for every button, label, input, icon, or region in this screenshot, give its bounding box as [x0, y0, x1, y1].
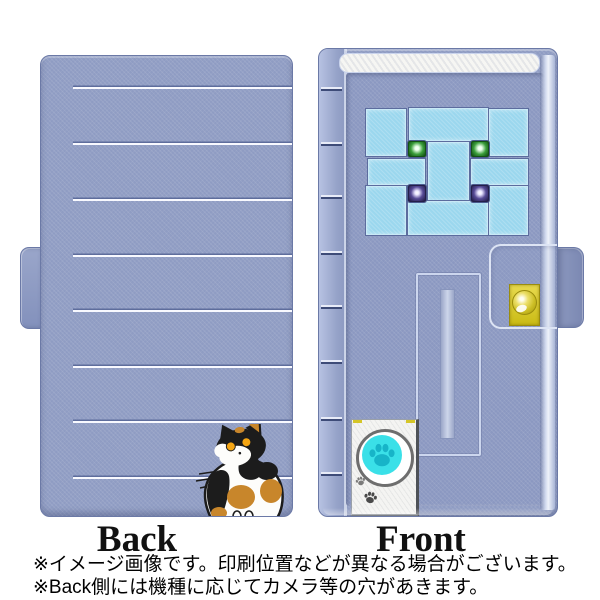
window-pane: [489, 186, 528, 235]
paw-print-icon: [362, 490, 379, 506]
siding-line: [73, 199, 292, 201]
case-bottom-bevel: [323, 508, 553, 515]
product-image: Back Front ※イメージ画像です。印刷位置などが異なる場合がございます。…: [0, 0, 600, 600]
door-transom-bar: [339, 53, 540, 73]
disclaimer-notes: ※イメージ画像です。印刷位置などが異なる場合がございます。 ※Back側には機種…: [33, 553, 598, 599]
window-pane: [408, 201, 488, 235]
spine-band: [321, 307, 342, 309]
purple-gem: [471, 185, 489, 202]
window-pane: [471, 159, 528, 185]
purple-gem: [408, 185, 426, 202]
window-pane: [368, 159, 425, 185]
spine-band: [321, 89, 342, 91]
spine-band: [321, 474, 342, 476]
spine-band: [321, 419, 342, 421]
paw-print-icon: [367, 442, 397, 468]
window-pane: [489, 109, 528, 156]
mail-slot-bar: [440, 289, 455, 439]
door-window-grid: [364, 107, 528, 234]
spine-band: [321, 144, 342, 146]
siding-line: [73, 143, 292, 145]
screw: [353, 420, 362, 423]
note-line: ※Back側には機種に応じてカメラ等の穴があきます。: [33, 576, 598, 599]
doorknob: [512, 290, 537, 315]
siding-line: [73, 366, 292, 368]
doorbell-paw-button: [362, 435, 402, 475]
green-gem: [408, 141, 426, 157]
knob-highlight: [515, 303, 528, 313]
paw-print-icon: [354, 475, 367, 488]
spine-band: [321, 362, 342, 364]
window-pane: [366, 109, 406, 156]
front-case: [318, 48, 558, 517]
closure-tab-front: [556, 247, 584, 328]
window-pane: [366, 186, 406, 235]
siding-line: [73, 255, 292, 257]
siding-line: [73, 421, 292, 423]
spine-band: [321, 253, 342, 255]
doorbell-plate: [351, 419, 419, 516]
screw: [406, 420, 415, 423]
siding-line: [73, 310, 292, 312]
calico-cat-illustration: [189, 424, 289, 517]
note-line: ※イメージ画像です。印刷位置などが異なる場合がございます。: [33, 553, 598, 576]
green-gem: [471, 141, 489, 157]
back-case: [40, 55, 293, 517]
case-spine: [319, 49, 345, 516]
spine-band: [321, 197, 342, 199]
window-pane: [409, 108, 488, 141]
window-pane: [428, 142, 469, 201]
siding-line: [73, 87, 292, 89]
